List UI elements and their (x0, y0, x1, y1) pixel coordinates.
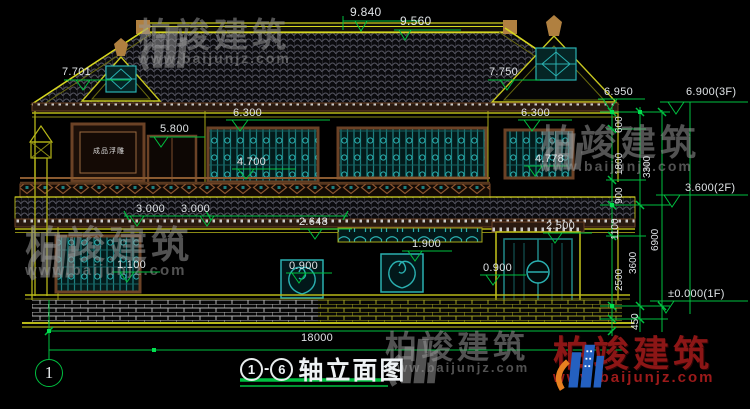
dim-3000-a: 3.000 (136, 203, 165, 215)
level-9560: 9.560 (400, 14, 432, 28)
cad-elevation-drawing: 柏竣建筑 www.baijunjz.com 柏竣建筑 www.baijunjz.… (0, 0, 750, 409)
dim-3000-b: 3.000 (181, 203, 210, 215)
level-7701: 7.701 (62, 66, 91, 78)
chain-6900: 6900 (650, 229, 661, 251)
axis-bubble-1: 1 (35, 359, 63, 387)
chain-3300: 3300 (642, 156, 653, 178)
chain-900: 900 (614, 187, 625, 204)
title-dash: - (264, 360, 269, 378)
level-9840: 9.840 (350, 5, 382, 19)
chain-1100: 1100 (610, 218, 621, 240)
level-7750: 7.750 (489, 66, 518, 78)
level-6900-3f: 6.900(3F) (686, 86, 736, 98)
level-4778: 4.778 (535, 153, 564, 165)
title-axis-end: 6 (270, 358, 293, 381)
title-axis-start: 1 (240, 358, 263, 381)
chain-2500: 2500 (614, 269, 625, 291)
window-lattice (208, 128, 318, 182)
title-text: 轴立面图 (298, 351, 406, 387)
level-0900-a: 0.900 (289, 260, 318, 272)
level-6300-right: 6.300 (521, 107, 550, 119)
chain-3600: 3600 (628, 252, 639, 274)
chain-450: 450 (630, 313, 641, 330)
chain-600: 600 (614, 116, 625, 133)
level-1100: 1.100 (117, 259, 146, 271)
elevation-linework (0, 0, 750, 409)
level-2500: 2.500 (546, 220, 575, 232)
chain-1800: 1800 (614, 153, 625, 175)
bracket-frieze (338, 228, 482, 242)
level-0900-b: 0.900 (483, 262, 512, 274)
window-lattice (338, 128, 486, 178)
level-4700: 4.700 (237, 156, 266, 168)
level-3600-2f: 3.600(2F) (685, 182, 735, 194)
carved-panel-right (381, 254, 423, 292)
level-2648: 2.648 (299, 216, 328, 228)
level-1900: 1.900 (412, 238, 441, 250)
level-6950: 6.950 (604, 86, 633, 98)
level-5800: 5.800 (160, 123, 189, 135)
drawing-title: 1 - 6 轴立面图 (240, 351, 406, 387)
finial-icon (546, 15, 562, 36)
relief-panel-label: 成品浮雕 (93, 146, 125, 156)
level-6300-left: 6.300 (233, 107, 262, 119)
level-0000-1f: ±0.000(1F) (668, 288, 725, 300)
dim-18000: 18000 (301, 332, 333, 344)
